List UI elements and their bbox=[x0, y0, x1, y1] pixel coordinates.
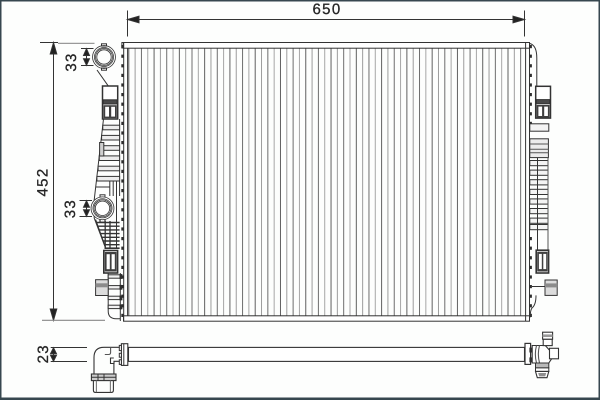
svg-text:33: 33 bbox=[62, 199, 79, 218]
svg-text:650: 650 bbox=[313, 1, 342, 18]
svg-text:23: 23 bbox=[35, 344, 52, 363]
svg-text:33: 33 bbox=[63, 52, 80, 71]
svg-text:452: 452 bbox=[35, 168, 52, 197]
